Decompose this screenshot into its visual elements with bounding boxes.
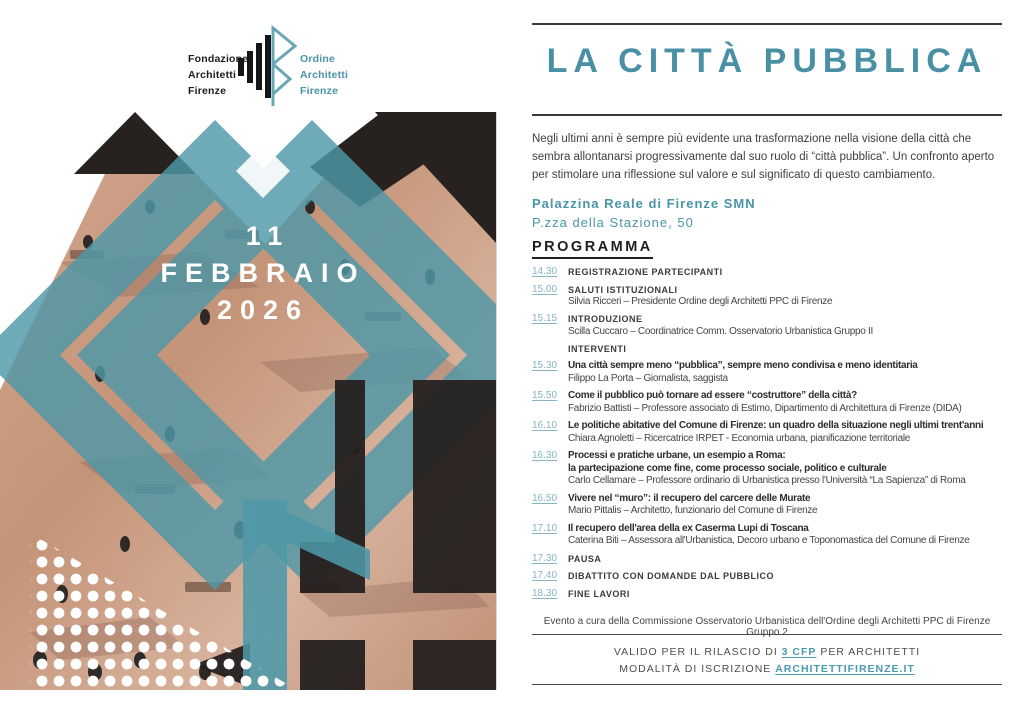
venue-name: Palazzina Reale di Firenze SMN — [532, 195, 1002, 214]
registration-link[interactable]: ARCHITETTIFIRENZE.IT — [775, 663, 915, 675]
session-title: SALUTI ISTITUZIONALI — [568, 284, 1002, 296]
program-heading: PROGRAMMA — [532, 239, 1002, 259]
program-list: 14.30 REGISTRAZIONE PARTECIPANTI 15.00 S… — [532, 266, 1002, 605]
talk-title: Una città sempre meno “pubblica”, sempre… — [568, 360, 1002, 373]
talk-title: Il recupero dell'area della ex Caserma L… — [568, 523, 1002, 536]
session-title: INTRODUZIONE — [568, 313, 1002, 325]
cfp-link[interactable]: 3 CFP — [782, 646, 817, 658]
ordine-architetti-firenze-logo-text: Ordine Architetti Firenze — [300, 52, 348, 99]
venue-address: P.zza della Stazione, 50 — [532, 214, 1002, 233]
speaker: Carlo Cellamare – Professore ordinario d… — [568, 475, 1002, 488]
time-link[interactable]: 18.30 — [532, 588, 562, 601]
program-row: 14.30 REGISTRAZIONE PARTECIPANTI — [532, 266, 1002, 279]
time-link[interactable]: 15.15 — [532, 313, 562, 338]
talk-title: Come il pubblico può tornare ad essere “… — [568, 390, 1002, 403]
program-row: 17.40 DIBATTITO CON DOMANDE DAL PUBBLICO — [532, 570, 1002, 583]
time-link[interactable]: 14.30 — [532, 266, 562, 279]
intro-paragraph: Negli ultimi anni è sempre più evidente … — [532, 131, 1002, 184]
time-link[interactable]: 16.30 — [532, 450, 562, 488]
cfp-text: VALIDO PER IL RILASCIO DI — [614, 646, 782, 658]
svg-text:11: 11 — [246, 221, 291, 251]
time-link[interactable]: 15.50 — [532, 390, 562, 415]
session-title: FINE LAVORI — [568, 588, 1002, 600]
time-link[interactable]: 16.10 — [532, 420, 562, 445]
time-link[interactable]: 16.50 — [532, 493, 562, 518]
program-row: 17.30 PAUSA — [532, 553, 1002, 566]
registration-text: MODALITÀ DI ISCRIZIONE — [619, 663, 775, 675]
time-link[interactable]: 17.10 — [532, 523, 562, 548]
event-photo-collage: 11 FEBBRAIO 2026 — [0, 112, 510, 692]
title-rule — [532, 114, 1002, 116]
talk-title-line2: la partecipazione come fine, come proces… — [568, 463, 1002, 476]
program-row: INTERVENTI — [532, 343, 1002, 355]
talk-title: Le politiche abitative del Comune di Fir… — [568, 420, 1002, 433]
speaker: Filippo La Porta – Giornalista, saggista — [568, 373, 1002, 386]
page-title: LA CITTÀ PUBBLICA — [532, 42, 1002, 81]
speaker: Chiara Agnoletti – Ricercatrice IRPET - … — [568, 433, 1002, 446]
svg-text:2026: 2026 — [217, 295, 309, 325]
time-link[interactable]: 17.30 — [532, 553, 562, 566]
time-link[interactable]: 15.30 — [532, 360, 562, 385]
section-label: INTERVENTI — [568, 343, 1002, 355]
speaker: Caterina Biti – Assessora all'Urbanistic… — [568, 535, 1002, 548]
speaker: Fabrizio Battisti – Professore associato… — [568, 403, 1002, 416]
speaker: Scilla Cuccaro – Coordinatrice Comm. Oss… — [568, 326, 1002, 339]
session-title: DIBATTITO CON DOMANDE DAL PUBBLICO — [568, 570, 1002, 582]
venue-block: Palazzina Reale di Firenze SMN P.zza del… — [532, 195, 1002, 233]
talk-title: Processi e pratiche urbane, un esempio a… — [568, 450, 1002, 463]
program-row: 16.10 Le politiche abitative del Comune … — [532, 420, 1002, 445]
speaker: Mario Pittalis – Architetto, funzionario… — [568, 505, 1002, 518]
program-row: 16.50 Vivere nel “muro”: il recupero del… — [532, 493, 1002, 518]
session-title: PAUSA — [568, 553, 1002, 565]
program-row: 17.10 Il recupero dell'area della ex Cas… — [532, 523, 1002, 548]
program-row: 15.50 Come il pubblico può tornare ad es… — [532, 390, 1002, 415]
time-link[interactable]: 15.00 — [532, 284, 562, 309]
cfp-text-after: PER ARCHITETTI — [816, 646, 920, 658]
program-row: 16.30 Processi e pratiche urbane, un ese… — [532, 450, 1002, 488]
time-link[interactable]: 17.40 — [532, 570, 562, 583]
program-row: 15.00 SALUTI ISTITUZIONALI Silvia Riccer… — [532, 284, 1002, 309]
registration-line: MODALITÀ DI ISCRIZIONE ARCHITETTIFIRENZE… — [532, 663, 1002, 675]
program-row: 18.30 FINE LAVORI — [532, 588, 1002, 601]
program-row: 15.15 INTRODUZIONE Scilla Cuccaro – Coor… — [532, 313, 1002, 338]
session-title: REGISTRAZIONE PARTECIPANTI — [568, 266, 1002, 278]
top-rule — [532, 23, 1002, 25]
footer-rule-top — [532, 634, 1002, 635]
speaker: Silvia Ricceri – Presidente Ordine degli… — [568, 296, 1002, 309]
time-spacer — [532, 343, 562, 355]
footer-rule-bottom — [532, 684, 1002, 685]
talk-title: Vivere nel “muro”: il recupero del carce… — [568, 493, 1002, 506]
architetti-firenze-logo-mark — [236, 24, 300, 110]
program-row: 15.30 Una città sempre meno “pubblica”, … — [532, 360, 1002, 385]
svg-text:FEBBRAIO: FEBBRAIO — [161, 258, 366, 288]
cfp-line: VALIDO PER IL RILASCIO DI 3 CFP PER ARCH… — [532, 646, 1002, 658]
